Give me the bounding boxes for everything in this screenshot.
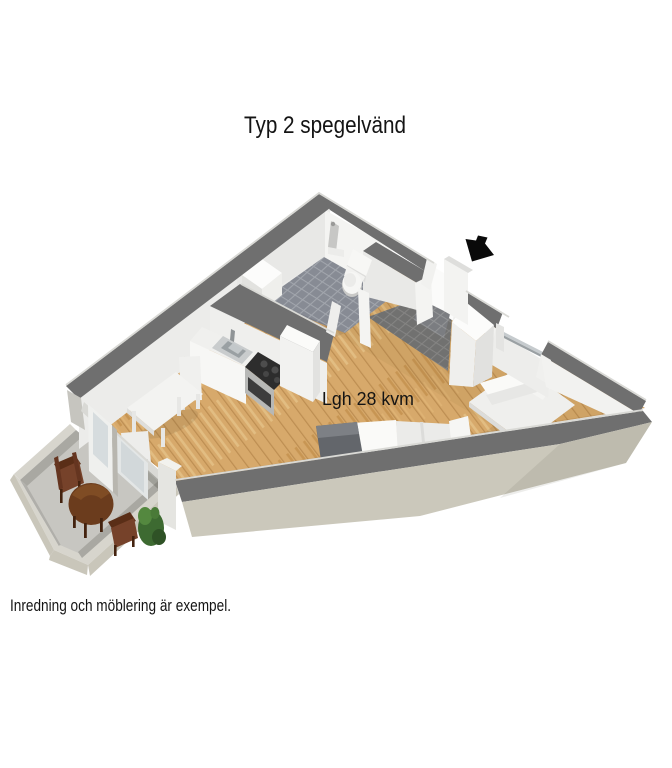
svg-text:Lgh 28 kvm: Lgh 28 kvm [322,388,414,409]
svg-text:Inredning och möblering är exe: Inredning och möblering är exempel. [10,596,231,615]
svg-text:Typ 2 spegelvänd: Typ 2 spegelvänd [244,112,406,139]
